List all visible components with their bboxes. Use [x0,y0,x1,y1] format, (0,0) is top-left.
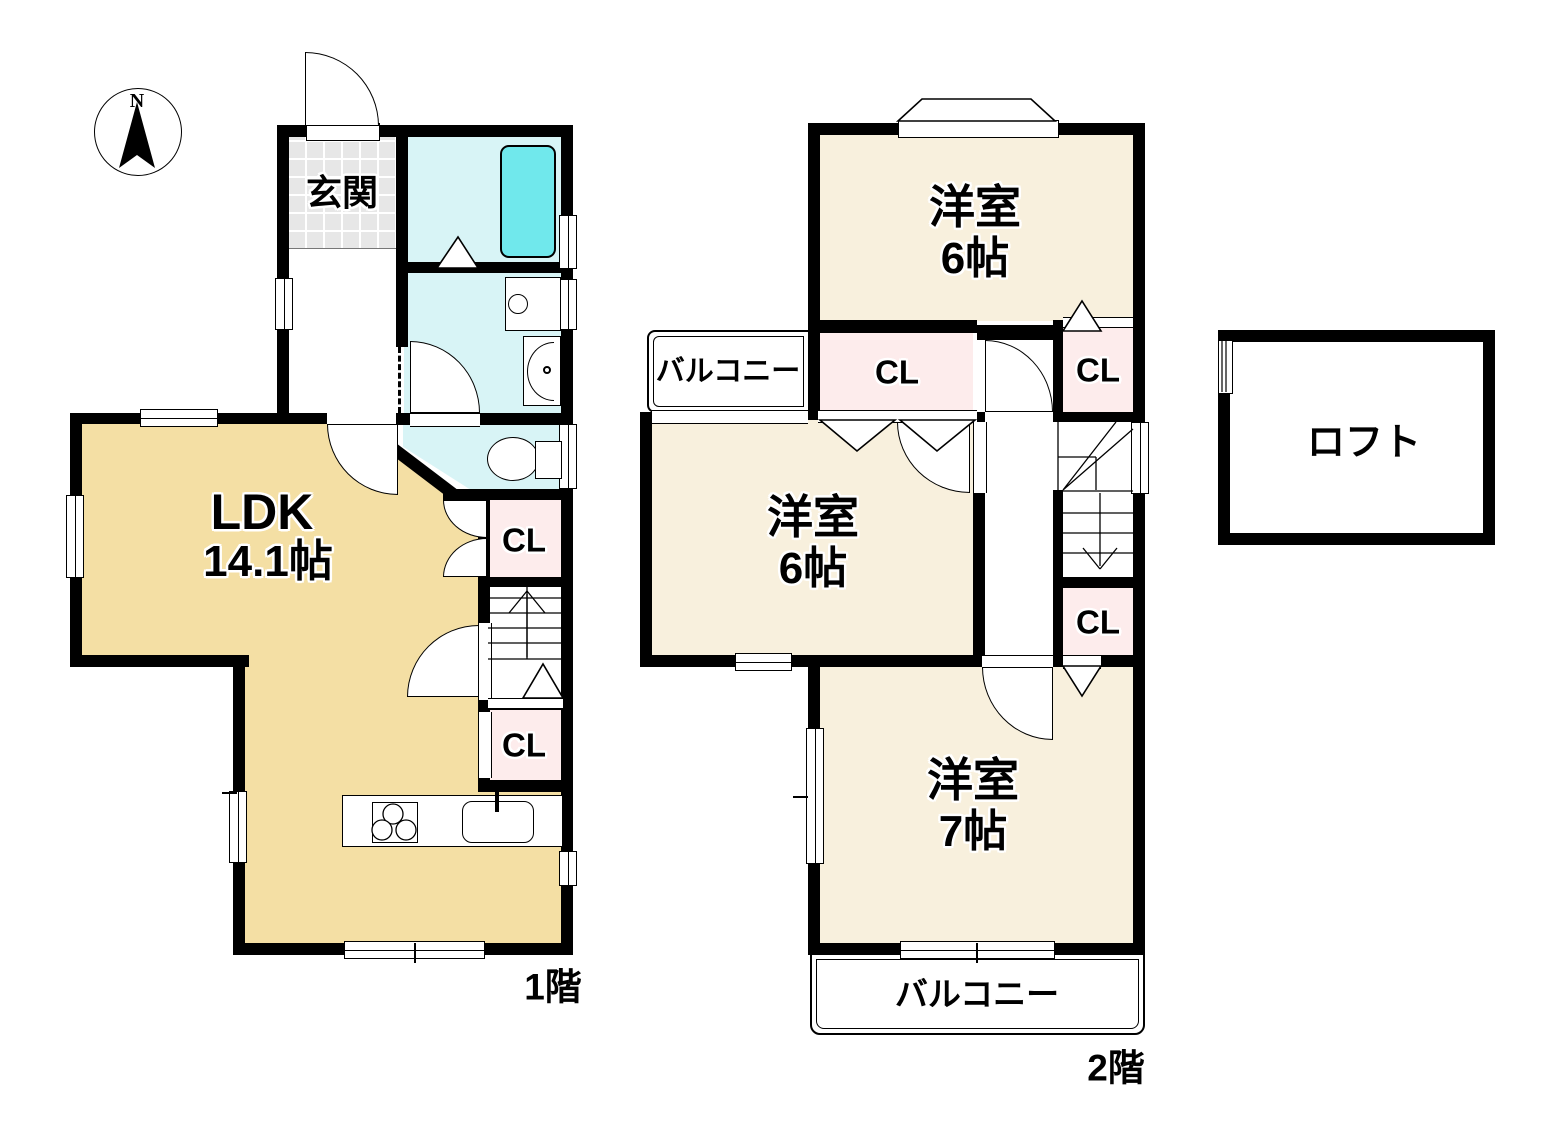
wall [808,123,820,420]
genkan-step-line [289,248,396,254]
room-size-north: 6帖 [941,237,1009,281]
threshold [488,698,563,709]
window [559,215,577,269]
wall [478,577,573,587]
window [229,791,247,863]
floor-label-2f: 2階 [1087,1050,1145,1087]
washer-door [508,294,528,314]
wall [396,125,408,347]
closet-threshold [1063,317,1133,328]
room-size-south: 7帖 [939,810,1007,854]
wall [1053,577,1145,588]
room-label-middle: 洋室 [767,494,859,540]
compass-north-label: N [130,91,144,111]
kitchen-sink [462,801,534,843]
room-size-ldk: 14.1帖 [203,540,333,584]
room-label-genkan: 玄関 [306,175,378,211]
stairs-first-floor [488,583,561,659]
room-label-south: 洋室 [927,757,1019,803]
closet-label: CL [1076,606,1120,639]
washbasin-drain [543,366,551,374]
balcony-threshold [652,410,808,424]
wall [1053,320,1063,422]
wall [1053,412,1145,422]
stove [372,802,418,843]
wall [1133,123,1145,955]
wall [277,125,289,418]
balcony-label-south: バルコニー [895,978,1059,1011]
door-panel [478,712,492,778]
window [1131,422,1149,494]
room-size-middle: 6帖 [779,547,847,591]
loft-ladder [1218,340,1233,394]
window [559,279,577,330]
bay-window-sill [898,120,1059,138]
stairs-second-floor [1058,420,1133,569]
floor-plan: N [0,0,1561,1135]
closet-label: CL [502,524,546,557]
room-label-north: 洋室 [929,184,1021,230]
window [140,409,218,427]
door-swing [305,52,379,126]
stairs-door-mark [523,664,563,698]
wall [640,412,652,667]
window [559,851,577,886]
wall [478,780,573,792]
wall [977,325,1063,340]
toilet-bowl [487,437,539,481]
threshold [410,413,480,427]
closet-label: CL [502,729,546,762]
floor-label-1f: 1階 [524,969,582,1006]
threshold [1063,655,1101,669]
door-panel [478,623,492,700]
room-label-ldk: LDK [211,487,314,537]
sliding-door-track [398,347,401,413]
door-panel [973,422,987,493]
window [344,941,485,959]
bay-window [898,99,1055,121]
window [275,278,293,330]
window [66,495,84,578]
door-swing [985,340,1053,412]
wall [818,320,977,333]
closet-label: CL [875,356,919,389]
wall [396,262,573,273]
wall [70,655,249,667]
window [900,941,1055,959]
window [806,728,824,864]
balcony-label-west: バルコニー [656,358,800,387]
closet-label: CL [1076,354,1120,387]
window [735,653,792,671]
bathtub [500,145,556,258]
toilet-tank [535,441,562,479]
wall [443,489,573,500]
room-label-loft: ロフト [1307,424,1421,462]
